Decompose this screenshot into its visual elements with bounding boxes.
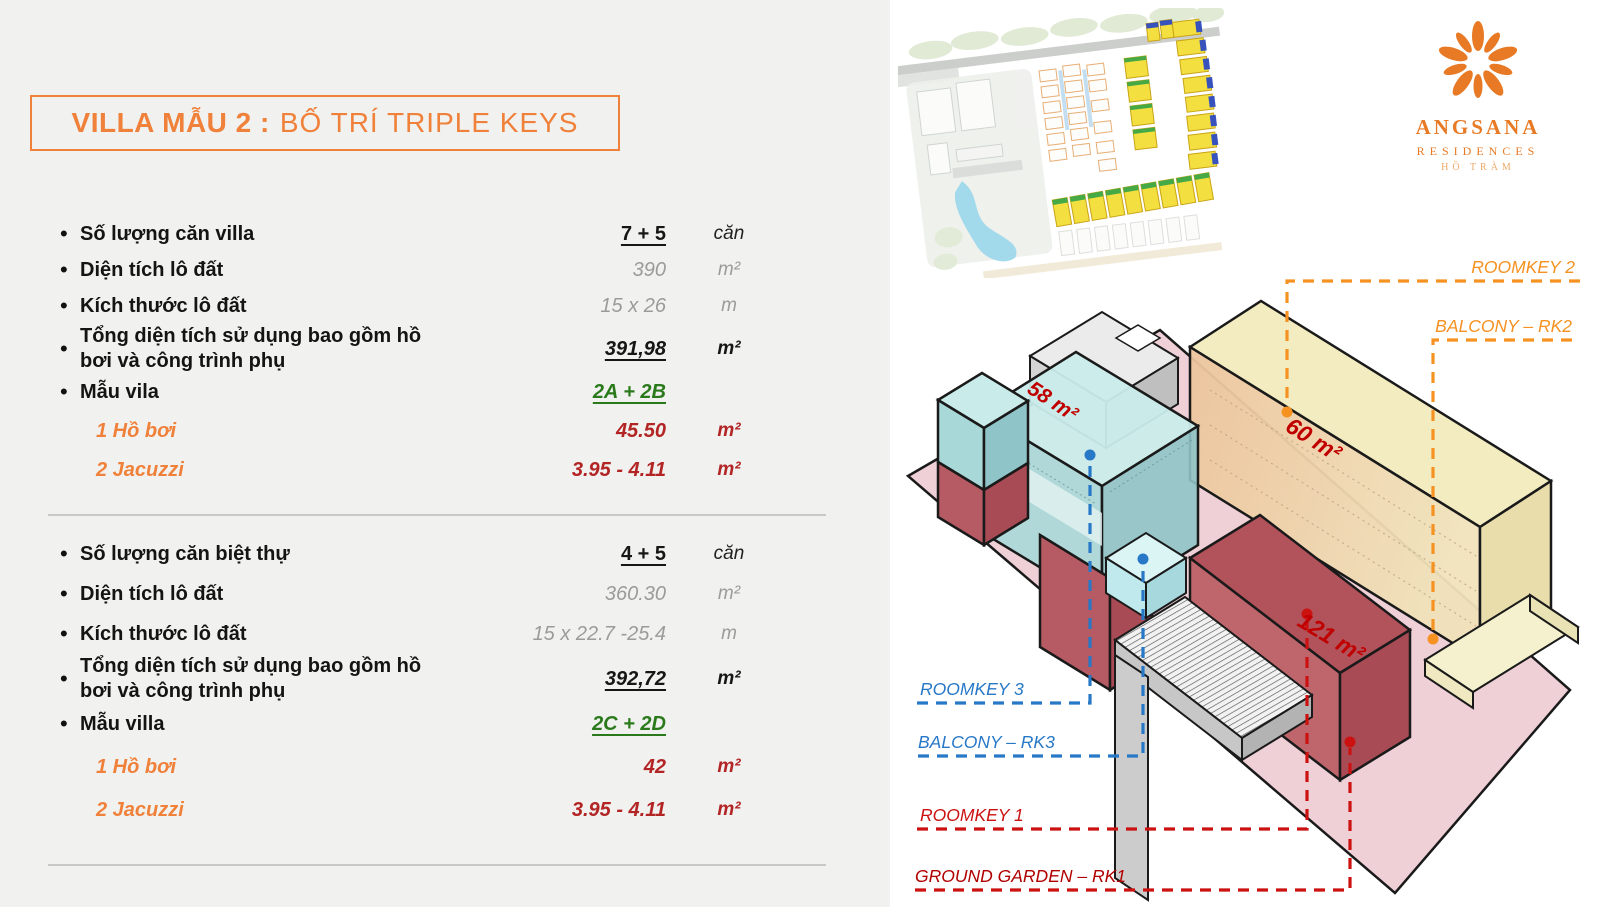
ground-garden-pin-dot — [1345, 737, 1356, 748]
spec-row: 2 Jacuzzi3.95 - 4.11m² — [30, 452, 860, 488]
spec-row: •Diện tích lô đất360.30m² — [30, 574, 860, 614]
row-label: Số lượng căn villa — [80, 222, 452, 247]
title-prefix: VILLA MẪU 2 : — [72, 107, 270, 139]
spec-row: •Tổng diện tích sử dụng bao gồm hồ bơi v… — [30, 324, 860, 374]
balcony-rk2-label: BALCONY – RK2 — [1435, 316, 1572, 336]
spec-row: •Tổng diện tích sử dụng bao gồm hồ bơi v… — [30, 654, 860, 704]
row-unit: m² — [670, 338, 788, 360]
roomkey2-label: ROOMKEY 2 — [1471, 257, 1575, 277]
angsana-flower-icon — [1430, 16, 1526, 108]
bottom-divider — [48, 864, 826, 866]
row-label: 1 Hồ bơi — [80, 419, 452, 444]
row-unit: căn — [670, 223, 788, 245]
spec-row: •Kích thước lô đất15 x 22.7 -25.4m — [30, 614, 860, 654]
brand-name: ANGSANA — [1388, 115, 1568, 140]
highlight-strip-mid — [1124, 56, 1157, 150]
row-value: 42 — [452, 756, 670, 779]
spec-row: 1 Hồ bơi45.50m² — [30, 413, 860, 449]
row-label: 1 Hồ bơi — [80, 755, 452, 780]
row-value: 3.95 - 4.11 — [452, 459, 670, 482]
roomkey1-label: ROOMKEY 1 — [920, 805, 1024, 825]
row-value: 392,72 — [452, 668, 670, 691]
spec-row: •Diện tích lô đất390m² — [30, 252, 860, 288]
balcony-rk3-pin-dot — [1138, 554, 1149, 565]
spec-row: •Mẫu vila2A + 2B — [30, 374, 860, 410]
masterplan-map — [898, 8, 1238, 278]
spec-panel: VILLA MẪU 2 : BỐ TRÍ TRIPLE KEYS •Số lượ… — [0, 0, 890, 907]
brand-logo: ANGSANA RESIDENCES HỒ TRÀM — [1388, 16, 1568, 173]
row-value: 2A + 2B — [452, 381, 670, 404]
spec-section-villa: •Số lượng căn villa7 + 5căn•Diện tích lô… — [30, 216, 860, 488]
row-label: Kích thước lô đất — [80, 294, 452, 319]
title-rest: BỐ TRÍ TRIPLE KEYS — [280, 107, 579, 139]
villa-axon-diagram: ROOMKEY 2 BALCONY – RK2 ROOMKEY 3 BALCON… — [880, 240, 1600, 907]
row-unit: căn — [670, 543, 788, 565]
row-unit: m — [670, 623, 788, 645]
spec-section-biet-thu: •Số lượng căn biệt thự4 + 5căn•Diện tích… — [30, 534, 860, 830]
row-unit: m² — [670, 459, 788, 481]
balcony-rk3-label: BALCONY – RK3 — [918, 732, 1055, 752]
row-label: Tổng diện tích sử dụng bao gồm hồ bơi và… — [80, 324, 452, 374]
row-value: 15 x 26 — [452, 295, 670, 318]
row-label: Số lượng căn biệt thự — [80, 542, 452, 567]
rk2-pin-dot — [1282, 407, 1293, 418]
row-unit: m² — [670, 259, 788, 281]
row-label: Diện tích lô đất — [80, 582, 452, 607]
row-label: Mẫu vila — [80, 380, 452, 405]
slide-page: VILLA MẪU 2 : BỐ TRÍ TRIPLE KEYS •Số lượ… — [0, 0, 1600, 907]
spec-row: •Số lượng căn villa7 + 5căn — [30, 216, 860, 252]
brand-sub: RESIDENCES — [1388, 144, 1568, 159]
row-bullet: • — [30, 713, 80, 735]
spec-row: •Kích thước lô đất15 x 26m — [30, 288, 860, 324]
page-title: VILLA MẪU 2 : BỐ TRÍ TRIPLE KEYS — [30, 95, 620, 151]
row-bullet: • — [30, 223, 80, 245]
row-unit: m — [670, 295, 788, 317]
row-label: 2 Jacuzzi — [80, 458, 452, 483]
row-label: 2 Jacuzzi — [80, 798, 452, 823]
row-value: 3.95 - 4.11 — [452, 799, 670, 822]
balcony-rk2-pin-dot — [1428, 634, 1439, 645]
row-bullet: • — [30, 623, 80, 645]
row-unit: m² — [670, 799, 788, 821]
masterplan-group — [898, 8, 1238, 278]
row-unit: m² — [670, 668, 788, 690]
row-unit: m² — [670, 583, 788, 605]
row-bullet: • — [30, 668, 80, 690]
spec-row: 2 Jacuzzi3.95 - 4.11m² — [30, 790, 860, 830]
row-value: 4 + 5 — [452, 543, 670, 566]
row-bullet: • — [30, 543, 80, 565]
row-unit: m² — [670, 756, 788, 778]
row-unit: m² — [670, 420, 788, 442]
condo-grid — [1039, 61, 1117, 177]
row-value: 45.50 — [452, 420, 670, 443]
row-label: Mẫu villa — [80, 712, 452, 737]
row-bullet: • — [30, 295, 80, 317]
spec-row: •Số lượng căn biệt thự4 + 5căn — [30, 534, 860, 574]
section-divider — [48, 514, 826, 516]
row-bullet: • — [30, 583, 80, 605]
row-value: 2C + 2D — [452, 713, 670, 736]
brand-location: HỒ TRÀM — [1388, 162, 1568, 173]
row-label: Tổng diện tích sử dụng bao gồm hồ bơi và… — [80, 654, 452, 704]
roomkey3-label: ROOMKEY 3 — [920, 679, 1024, 699]
rk3-pin-dot — [1085, 450, 1096, 461]
row-bullet: • — [30, 381, 80, 403]
ground-garden-label: GROUND GARDEN – RK1 — [915, 866, 1126, 886]
row-bullet: • — [30, 338, 80, 360]
row-value: 390 — [452, 259, 670, 282]
row-label: Kích thước lô đất — [80, 622, 452, 647]
row-bullet: • — [30, 259, 80, 281]
row-value: 7 + 5 — [452, 223, 670, 246]
row-value: 391,98 — [452, 338, 670, 361]
row-value: 360.30 — [452, 583, 670, 606]
row-label: Diện tích lô đất — [80, 258, 452, 283]
row-value: 15 x 22.7 -25.4 — [452, 623, 670, 646]
spec-row: 1 Hồ bơi42m² — [30, 747, 860, 787]
spec-row: •Mẫu villa2C + 2D — [30, 704, 860, 744]
